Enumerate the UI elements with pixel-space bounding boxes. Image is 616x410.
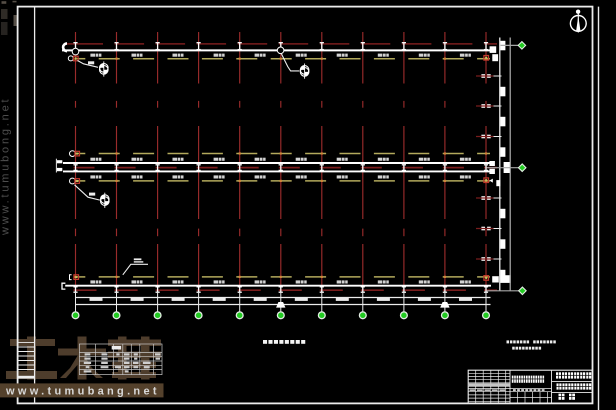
svg-text:www.tumubang.net: www.tumubang.net (5, 386, 160, 398)
svg-text:www.tumubong.net: www.tumubong.net (0, 97, 12, 236)
